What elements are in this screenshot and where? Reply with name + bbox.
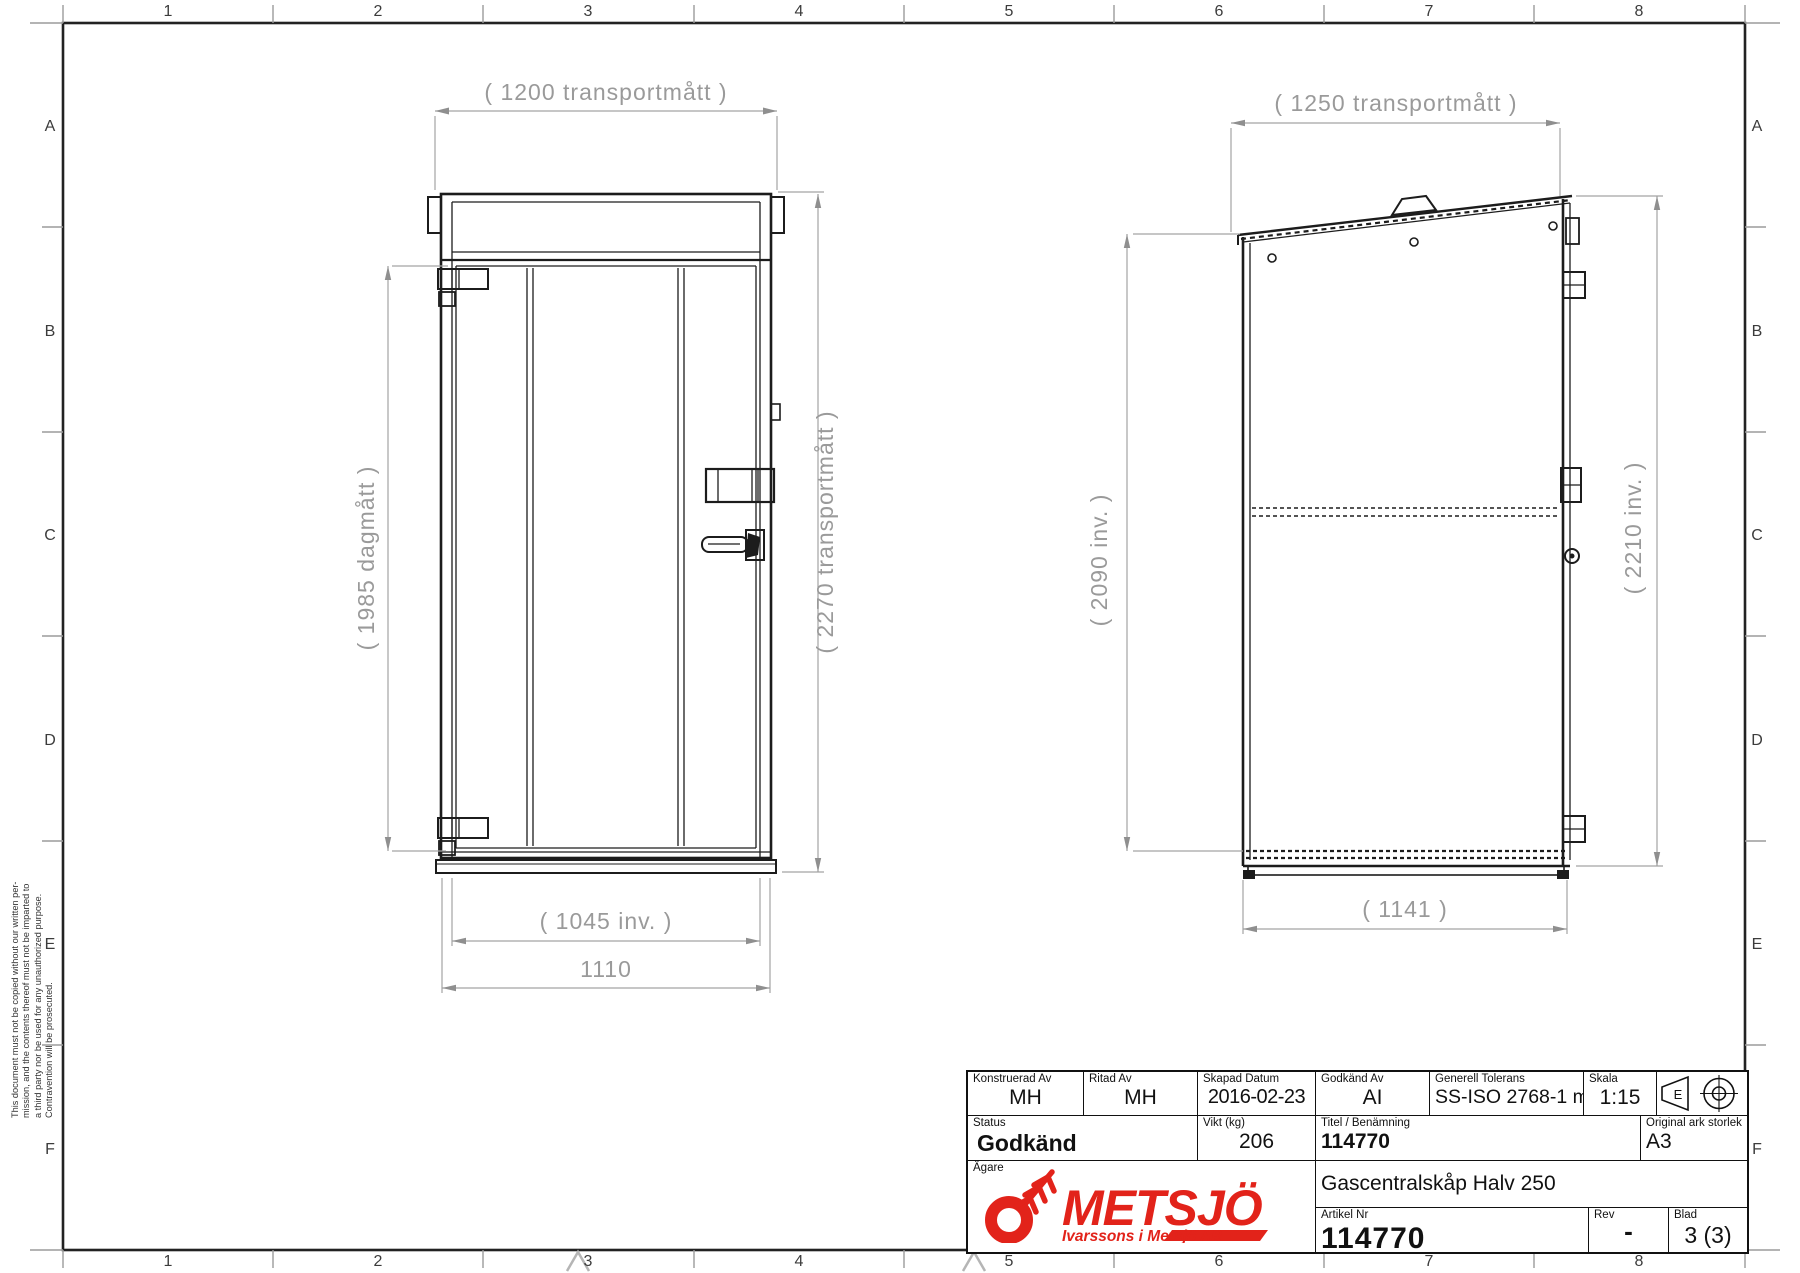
title-block: Konstruerad Av MH Ritad Av MH Skapad Dat…	[966, 1070, 1749, 1254]
dim-label: ( 1200 transportmått )	[484, 79, 727, 105]
zone-col-label: 1	[164, 1253, 173, 1270]
zone-row-label: E	[1752, 936, 1763, 953]
side-hinge-top	[1563, 272, 1585, 298]
zone-row-label: D	[1751, 732, 1763, 749]
cell-label: Vikt (kg)	[1203, 1117, 1310, 1129]
zone-col-label: 6	[1215, 3, 1224, 20]
side-handle-knob	[1565, 549, 1579, 563]
screw-hole-icon	[1268, 254, 1276, 262]
cell-label: Original ark storlek	[1646, 1117, 1742, 1129]
metsjo-logo: METSJÖ Ivarssons i Metsjö AB	[976, 1165, 1301, 1243]
cell-ritad-av: Ritad Av MH	[1083, 1072, 1197, 1115]
cell-value: MH	[1089, 1086, 1192, 1110]
side-base-plate	[1248, 866, 1564, 875]
foot	[1243, 870, 1255, 879]
dim-label: ( 1141 )	[1362, 896, 1448, 922]
cell-value: 206	[1203, 1130, 1310, 1154]
fold-mark-icon	[963, 1252, 985, 1271]
front-view	[428, 194, 784, 873]
zone-col-label: 5	[1005, 3, 1014, 20]
door-handle	[702, 530, 764, 560]
drawing-sheet: 1 2 3 4 5 6 7 8 1 2 3 4 5 6 7 8 A B C D …	[0, 0, 1800, 1273]
dim-label: ( 2210 inv. )	[1620, 462, 1646, 595]
cell-titel-benamning: Gascentralskåp Halv 250	[1315, 1160, 1747, 1207]
zone-row-label: A	[45, 118, 56, 135]
dim-label: ( 1250 transportmått )	[1274, 90, 1517, 116]
cell-value: 3 (3)	[1674, 1222, 1742, 1249]
front-dim-top-width: ( 1200 transportmått )	[435, 79, 777, 190]
front-dim-outer-width: 1110	[442, 878, 770, 993]
cell-label: Godkänd Av	[1321, 1073, 1424, 1085]
zone-row-label: F	[1752, 1141, 1762, 1158]
dim-label: 1110	[580, 956, 632, 982]
cell-label: Artikel Nr	[1321, 1209, 1583, 1221]
edge-bracket	[1566, 218, 1579, 244]
zone-col-label: 7	[1425, 1253, 1434, 1270]
side-hinge-bottom	[1563, 816, 1585, 842]
disclaimer-line: Contravention will be prosecuted.	[44, 844, 55, 1118]
zone-col-label: 2	[374, 3, 383, 20]
cell-godkand-av: Godkänd Av AI	[1315, 1072, 1429, 1115]
cell-generell-tolerans: Generell Tolerans SS-ISO 2768-1 m	[1429, 1072, 1583, 1115]
cell-titel: Titel / Benämning 114770	[1315, 1115, 1640, 1160]
cell-value: AI	[1321, 1086, 1424, 1110]
cell-value: -	[1594, 1222, 1663, 1240]
cell-label: Skala	[1589, 1073, 1651, 1085]
cell-label: Skapad Datum	[1203, 1073, 1310, 1085]
side-view	[1238, 196, 1585, 879]
disclaimer-line: This document must not be copied without…	[10, 844, 21, 1118]
side-dim-bottom-width: ( 1141 )	[1243, 880, 1567, 934]
side-dim-right-height: ( 2210 inv. )	[1576, 196, 1663, 866]
screw-hole-icon	[1410, 238, 1418, 246]
zone-col-label: 5	[1005, 1253, 1014, 1270]
logo-tree-icon	[1016, 1172, 1054, 1212]
hinge-bottom	[438, 818, 488, 855]
zone-row-label: F	[45, 1141, 55, 1158]
cell-label: Titel / Benämning	[1321, 1117, 1635, 1129]
cell-projection-symbol: E	[1656, 1072, 1747, 1115]
top-flange-left	[428, 197, 441, 233]
first-angle-projection-icon: E	[1657, 1072, 1747, 1115]
latch-block	[706, 469, 774, 502]
base-plate	[436, 860, 776, 873]
zone-col-label: 1	[164, 3, 173, 20]
copyright-disclaimer: This document must not be copied without…	[10, 844, 56, 1118]
cell-skala: Skala 1:15	[1583, 1072, 1656, 1115]
zone-col-label: 6	[1215, 1253, 1224, 1270]
disclaimer-line: mission, and the contents thereof must n…	[21, 844, 32, 1118]
dim-label: ( 1045 inv. )	[540, 908, 673, 934]
zone-col-label: 8	[1635, 1253, 1644, 1270]
cell-value: Gascentralskåp Halv 250	[1321, 1172, 1742, 1196]
zone-row-label: C	[1751, 527, 1763, 544]
cell-status: Status Godkänd	[968, 1115, 1197, 1160]
cell-label: Ritad Av	[1089, 1073, 1192, 1085]
cell-value: A3	[1646, 1130, 1742, 1154]
side-dim-left-height: ( 2090 inv. )	[1086, 234, 1243, 851]
cell-skapad-datum: Skapad Datum 2016-02-23	[1197, 1072, 1315, 1115]
front-dim-total-height: ( 2270 transportmått )	[778, 192, 838, 872]
cell-label: Blad	[1674, 1209, 1742, 1221]
cell-value: 114770	[1321, 1130, 1635, 1154]
screw-hole-icon	[1549, 222, 1557, 230]
disclaimer-line: a third party nor be used for any unauth…	[33, 844, 44, 1118]
front-dim-door-height: ( 1985 dagmått )	[353, 266, 448, 851]
zone-col-label: 2	[374, 1253, 383, 1270]
cell-value: 1:15	[1589, 1086, 1651, 1110]
zone-col-label: 3	[584, 1253, 593, 1270]
cell-original-ark-storlek: Original ark storlek A3	[1640, 1115, 1747, 1160]
cell-value: SS-ISO 2768-1 m	[1435, 1086, 1578, 1109]
dim-label: ( 2270 transportmått )	[812, 410, 838, 653]
cell-artikel-nr: Artikel Nr 114770	[1315, 1207, 1588, 1252]
zone-row-label: B	[1752, 323, 1763, 340]
top-flange-right	[771, 197, 784, 233]
zone-col-label: 4	[795, 3, 804, 20]
cell-label: Generell Tolerans	[1435, 1073, 1578, 1085]
cell-value: MH	[973, 1086, 1078, 1110]
cell-blad: Blad 3 (3)	[1668, 1207, 1747, 1252]
cell-label: Konstruerad Av	[973, 1073, 1078, 1085]
zone-row-label: C	[44, 527, 56, 544]
zone-col-label: 7	[1425, 3, 1434, 20]
foot	[1557, 870, 1569, 879]
cell-label: Status	[973, 1117, 1192, 1129]
cell-rev: Rev -	[1588, 1207, 1668, 1252]
zone-col-label: 8	[1635, 3, 1644, 20]
hinge-top	[438, 269, 488, 306]
zone-col-label: 3	[584, 3, 593, 20]
zone-row-label: D	[44, 732, 56, 749]
dim-label: ( 1985 dagmått )	[353, 466, 379, 651]
dim-label: ( 2090 inv. )	[1086, 494, 1112, 627]
zone-col-label: 4	[795, 1253, 804, 1270]
side-clip	[771, 404, 780, 420]
front-dim-inner-width: ( 1045 inv. )	[452, 878, 760, 946]
cell-vikt: Vikt (kg) 206	[1197, 1115, 1315, 1160]
sloped-roof	[1238, 196, 1572, 245]
zone-row-label: B	[45, 323, 56, 340]
cell-konstruerad-av: Konstruerad Av MH	[968, 1072, 1083, 1115]
projection-letter: E	[1674, 1087, 1683, 1102]
zone-row-labels: A B C D E F A B C D E F	[44, 118, 1763, 1158]
cell-value: 114770	[1321, 1222, 1583, 1252]
cell-value: Godkänd	[973, 1130, 1192, 1157]
zone-row-label: A	[1752, 118, 1763, 135]
cell-value: 2016-02-23	[1203, 1086, 1310, 1109]
logo-tagline: Ivarssons i Metsjö AB	[1062, 1228, 1223, 1243]
cell-agare: Ägare METSJÖ Ivarssons i Metsjö AB	[968, 1160, 1315, 1252]
